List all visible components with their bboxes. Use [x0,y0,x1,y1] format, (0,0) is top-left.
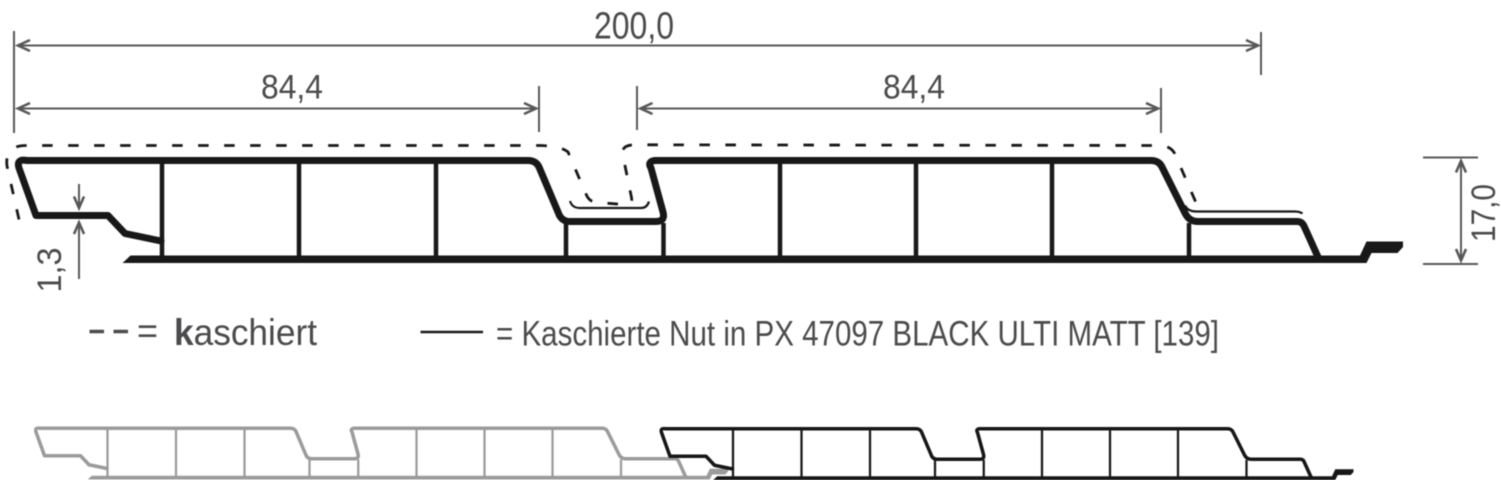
svg-text:17,0: 17,0 [1465,184,1501,242]
svg-text:84,4: 84,4 [261,69,323,107]
svg-text:1,3: 1,3 [31,248,69,293]
svg-text:200,0: 200,0 [594,6,674,48]
svg-text:84,4: 84,4 [883,69,945,107]
svg-text:=: = [137,310,158,351]
svg-text:kaschiert: kaschiert [174,312,318,353]
svg-text:= Kaschierte Nut in PX 47097 B: = Kaschierte Nut in PX 47097 BLACK ULTI … [496,315,1219,354]
